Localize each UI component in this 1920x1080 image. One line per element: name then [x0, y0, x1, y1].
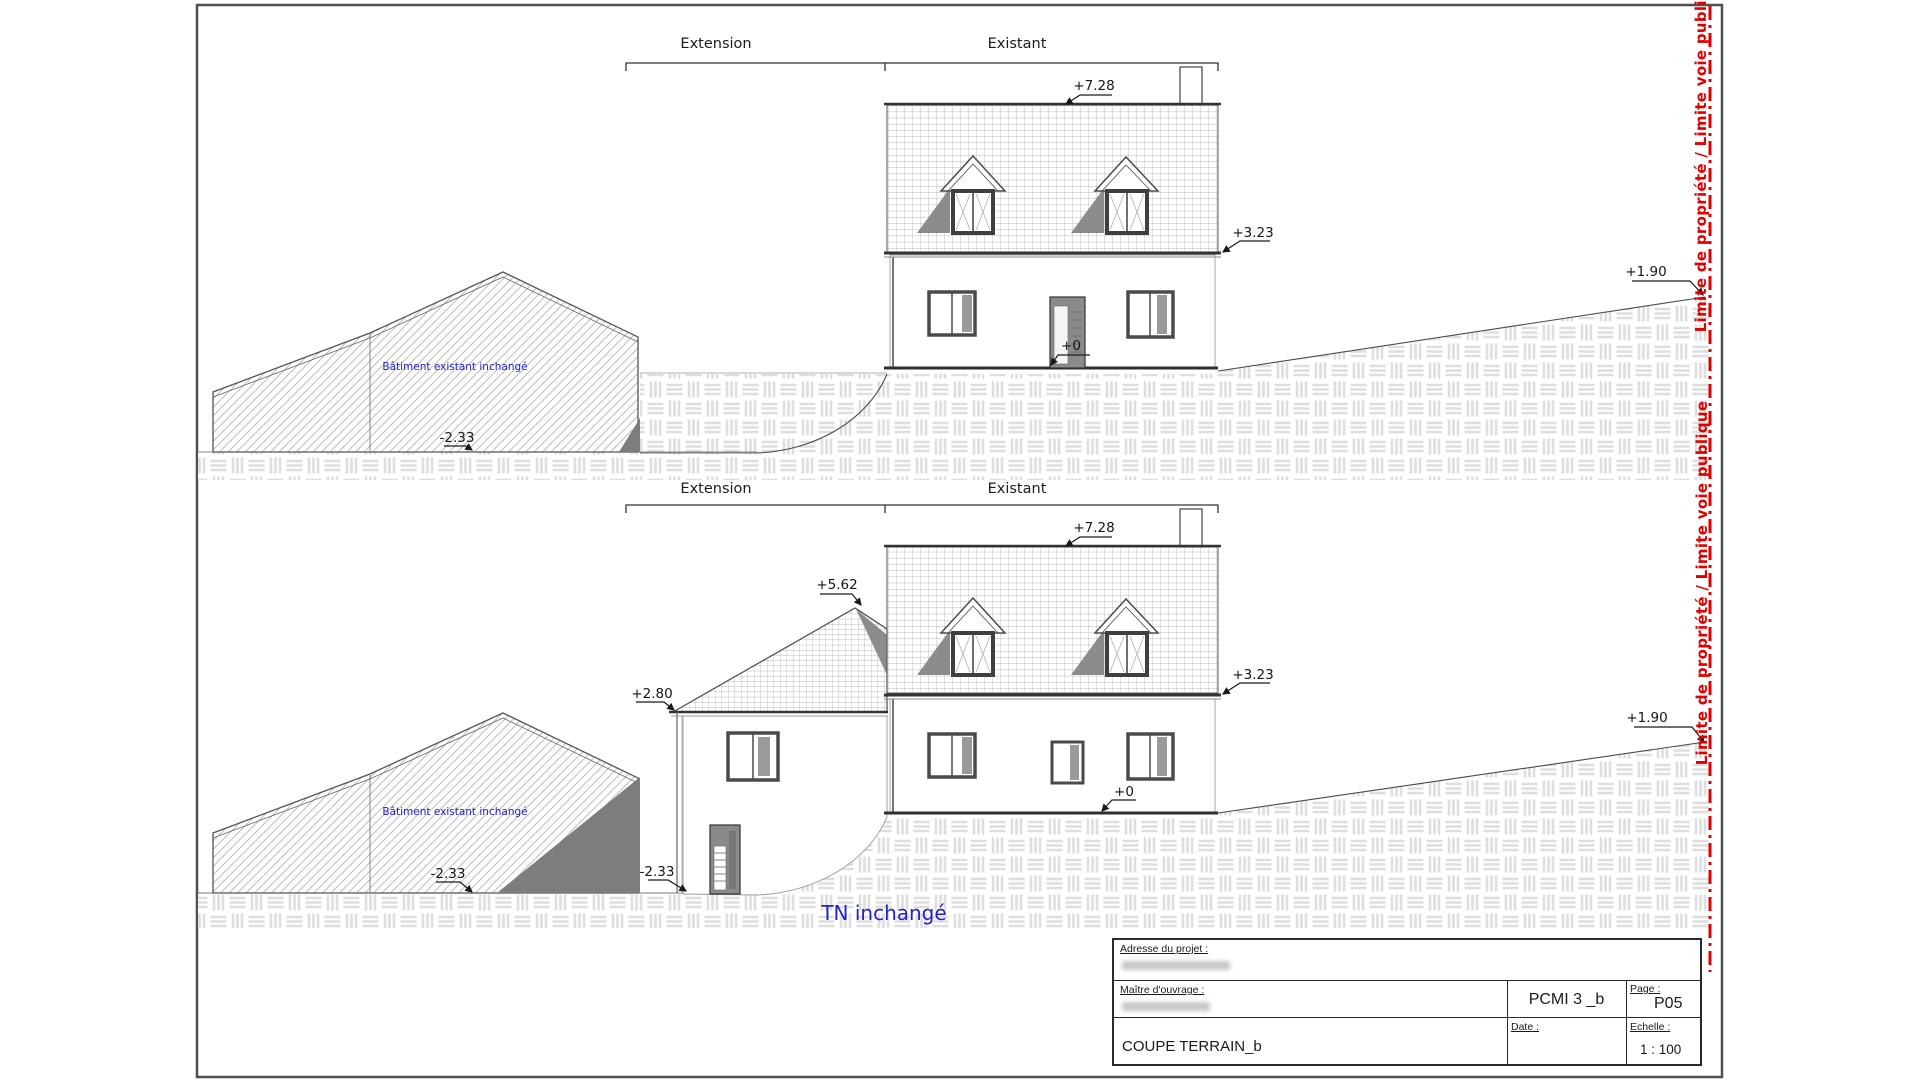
- bottom-dim-zero: +0: [1114, 784, 1134, 800]
- title-block-address-row: Adresse du projet :: [1114, 940, 1700, 981]
- bottom-chimney: [1180, 509, 1202, 547]
- redacted-address: [1122, 961, 1230, 970]
- top-dim-barn: -2.33: [440, 430, 475, 446]
- top-dim-eave: +3.23: [1232, 225, 1273, 241]
- bottom-dim-eave: +3.23: [1232, 667, 1273, 683]
- address-label: Adresse du projet :: [1120, 943, 1208, 955]
- bottom-dim-barn: -2.33: [431, 866, 466, 882]
- top-dim-ridge: +7.28: [1073, 78, 1114, 94]
- top-barn-note: Bâtiment existant inchangé: [382, 361, 527, 373]
- top-dim-boundary: +1.90: [1625, 264, 1666, 280]
- scale-cell: Echelle : 1 : 100: [1626, 1018, 1700, 1064]
- reference-value: PCMI 3 _b: [1529, 991, 1605, 1009]
- bottom-barn-note: Bâtiment existant inchangé: [382, 806, 527, 818]
- top-window-right: [1128, 292, 1173, 337]
- title-block: Adresse du projet : Maître d'ouvrage : C…: [1112, 938, 1702, 1066]
- terrain-note: TN inchangé: [821, 901, 946, 925]
- date-cell: Date :: [1507, 1018, 1626, 1064]
- top-existant-label: Existant: [988, 36, 1047, 52]
- date-label: Date :: [1511, 1021, 1539, 1033]
- reference-cell: PCMI 3 _b: [1507, 981, 1626, 1018]
- drawing-title: COUPE TERRAIN_b: [1122, 1038, 1262, 1055]
- extension-window: [728, 733, 778, 780]
- top-chimney: [1180, 67, 1202, 105]
- scale-value: 1 : 100: [1640, 1042, 1681, 1057]
- top-extension-label: Extension: [680, 36, 751, 52]
- bottom-existant-label: Existant: [988, 481, 1047, 497]
- bottom-window-left: [929, 734, 975, 777]
- bottom-window-middle: [1052, 742, 1083, 783]
- bottom-dim-boundary: +1.90: [1626, 710, 1667, 726]
- bottom-dim-door: -2.33: [640, 864, 675, 880]
- drawing-sheet: Extension Existant +7.28 +3.23 +0 -2.33 …: [0, 0, 1920, 1080]
- property-limit-label-bottom: Limite de propriété / Limite voie publiq…: [1693, 401, 1711, 766]
- page-value: P05: [1654, 995, 1682, 1013]
- extension-door: [710, 825, 740, 894]
- bottom-window-right: [1128, 734, 1173, 779]
- top-door: [1050, 297, 1085, 368]
- scale-label: Echelle :: [1630, 1021, 1670, 1033]
- bottom-dim-ext-eave: +2.80: [631, 686, 672, 702]
- property-limit-label-top: Limite de propriété / Limite voie publiq…: [1692, 0, 1710, 332]
- top-house: [884, 67, 1221, 368]
- bottom-extension-label: Extension: [680, 481, 751, 497]
- bottom-house: [884, 509, 1221, 813]
- owner-label: Maître d'ouvrage :: [1120, 984, 1204, 996]
- top-window-left: [929, 292, 975, 335]
- top-dim-zero: +0: [1061, 338, 1081, 354]
- drawing-canvas: [0, 0, 1920, 1080]
- bottom-dim-ridge: +7.28: [1073, 520, 1114, 536]
- bottom-dim-ext-ridge: +5.62: [816, 577, 857, 593]
- page-cell: Page : P05: [1626, 981, 1700, 1018]
- page-label: Page :: [1630, 983, 1660, 995]
- redacted-owner: [1122, 1002, 1210, 1011]
